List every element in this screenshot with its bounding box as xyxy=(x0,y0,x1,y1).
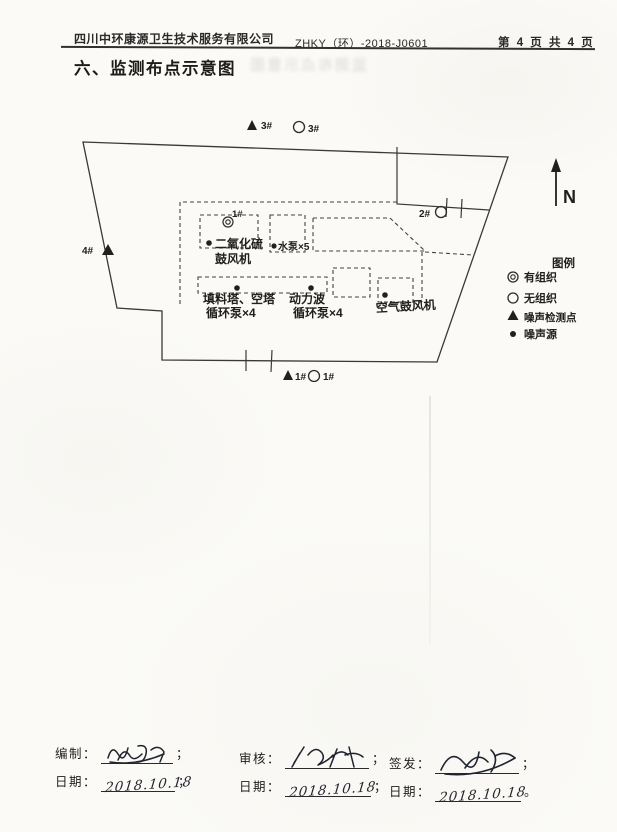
handwritten-date: 2018.10.18 xyxy=(438,784,527,806)
dashed-extension xyxy=(425,252,473,255)
upper-right-building xyxy=(313,218,425,251)
legend-organized-icon xyxy=(508,272,518,282)
separator: ； xyxy=(372,748,385,769)
handwritten-date: 2018.10.18 xyxy=(288,779,377,801)
noise-point-4-label: 4# xyxy=(82,246,94,257)
document-page: 四川中环康源卫生技术服务有限公司 ZHKY（环）-2018-J0601 第 4 … xyxy=(0,0,617,832)
air-blower-label: 空气鼓风机 xyxy=(375,297,436,315)
reviewed-date-line: 2018.10.18 xyxy=(285,774,371,797)
legend-unorganized-label: 无组织 xyxy=(523,291,557,305)
dynamic-wave-label-line1: 动力波 xyxy=(289,291,326,306)
gas-point-1-icon xyxy=(309,371,320,382)
noise-point-1-icon xyxy=(283,370,293,380)
separator: ； xyxy=(522,753,535,774)
small-building xyxy=(333,268,370,297)
noise-source-dot xyxy=(382,292,388,298)
legend-noise-source-label: 噪声源 xyxy=(524,327,557,341)
reviewed-by-label: 审核： xyxy=(239,748,281,769)
gas-point-3-label: 3# xyxy=(308,124,320,135)
gate-tick xyxy=(461,199,462,218)
issued-date-label: 日期： xyxy=(389,781,431,802)
prepared-by-signature xyxy=(101,741,173,764)
handwritten-date: 2018.10.18 xyxy=(104,774,193,796)
legend-unorganized-icon xyxy=(508,293,518,303)
packing-tower-label-line1: 填料塔、空塔 xyxy=(203,291,276,306)
noise-source-dot xyxy=(234,285,240,291)
legend-organized-icon-inner xyxy=(511,275,515,279)
noise-source-dot xyxy=(271,243,276,248)
gas-point-3-icon xyxy=(294,122,305,133)
site-plan-diagram: 1# 二氧化硫 鼓风机 水泵×5 填料塔、空塔 循环泵×4 动力波 循环泵×4 … xyxy=(0,0,617,430)
north-arrow-head xyxy=(551,158,561,172)
legend-noise-point-icon xyxy=(508,310,519,320)
issued-date-line: 2018.10.18 xyxy=(435,779,521,802)
separator: ； xyxy=(176,743,189,764)
pump-row-building xyxy=(198,277,327,293)
signature-scrawl xyxy=(437,746,519,776)
noise-point-3-label: 3# xyxy=(261,121,273,132)
gas-point-2-icon xyxy=(436,207,447,218)
prepared-date-label: 日期： xyxy=(55,771,97,792)
north-label: N xyxy=(563,187,576,207)
reviewed-date-label: 日期： xyxy=(239,776,281,797)
prepared-by-label: 编制： xyxy=(55,743,97,764)
signature-scrawl xyxy=(287,743,367,771)
noise-source-dot xyxy=(308,285,314,291)
stack-outlet-label: 1# xyxy=(232,209,243,220)
packing-tower-label-line2: 循环泵×4 xyxy=(206,305,256,320)
legend-noise-point-label: 噪声检测点 xyxy=(524,311,577,324)
issued-by-block: 签发： ； 日期： 2018.10.18 。 xyxy=(389,750,537,806)
gas-point-2-label: 2# xyxy=(419,209,431,220)
prepared-date-line: 2018.10.18 xyxy=(101,769,175,792)
reviewed-by-block: 审核： ； 日期： 2018.10.18 ； xyxy=(239,745,387,801)
noise-point-1-label: 1# xyxy=(295,372,307,383)
gate-tick xyxy=(271,350,272,372)
dynamic-wave-label-line2: 循环泵×4 xyxy=(293,305,343,320)
issued-by-label: 签发： xyxy=(389,753,431,774)
reviewed-by-signature xyxy=(285,746,369,769)
prepared-by-block: 编制： ； 日期： 2018.10.18 ； xyxy=(55,740,191,796)
signature-scrawl xyxy=(103,740,171,766)
paper-crease xyxy=(429,396,431,644)
water-pump-label: 水泵×5 xyxy=(277,240,310,253)
legend-organized-label: 有组织 xyxy=(524,270,557,284)
gas-point-1-label: 1# xyxy=(323,372,335,383)
so2-blower-label-line1: 二氧化硫 xyxy=(215,236,263,251)
noise-source-dot xyxy=(206,240,212,246)
so2-blower-label-line2: 鼓风机 xyxy=(215,251,251,266)
issued-by-signature xyxy=(435,751,519,774)
legend-title: 图例 xyxy=(552,256,575,270)
legend-noise-source-icon xyxy=(510,331,516,337)
noise-point-3-icon xyxy=(247,120,257,130)
